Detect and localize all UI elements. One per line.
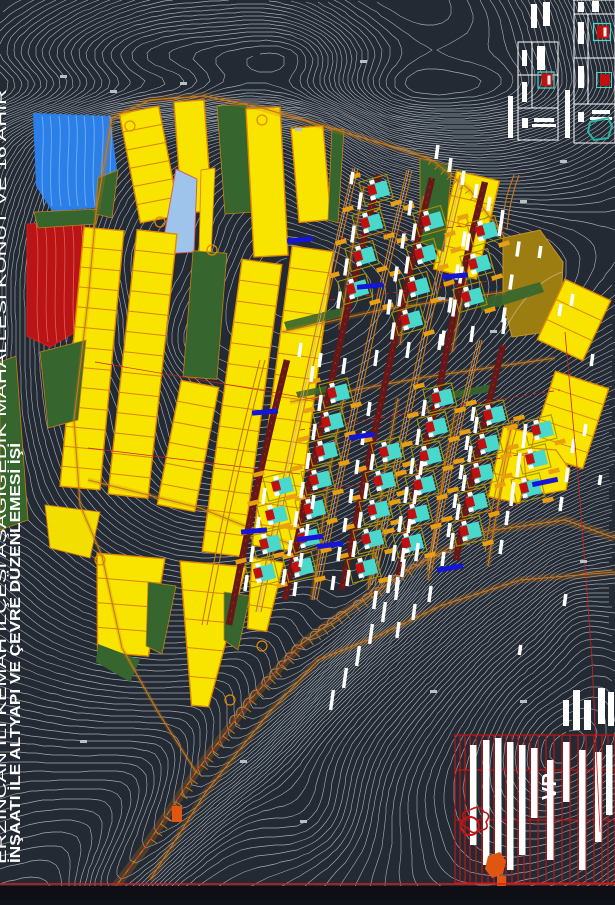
svg-text:İNŞAATI İLE ALTYAPI VE ÇEVRE D: İNŞAATI İLE ALTYAPI VE ÇEVRE DÜZENLEMESİ… [7,443,24,863]
svg-text:VP: VP [539,773,561,800]
